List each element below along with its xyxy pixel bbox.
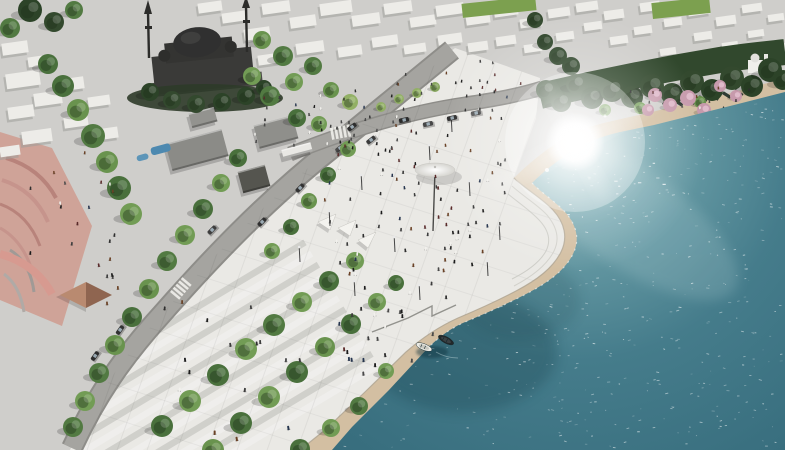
wave-speckle: [710, 253, 711, 254]
tree-highlight: [267, 390, 276, 399]
person-body: [447, 213, 449, 217]
wave-speckle: [703, 383, 705, 384]
wave-speckle: [557, 341, 558, 342]
tree-highlight: [301, 295, 309, 303]
wave-speckle: [402, 438, 405, 439]
wave-speckle: [768, 361, 769, 362]
wave-speckle: [772, 426, 773, 427]
wave-speckle: [594, 401, 597, 402]
wave-speckle: [749, 375, 751, 376]
person-body: [427, 233, 429, 237]
person-body: [414, 165, 416, 168]
wave-speckle: [516, 352, 518, 353]
person-body: [360, 307, 362, 311]
person-body: [445, 223, 447, 227]
person-body: [259, 340, 261, 344]
person-body: [309, 131, 311, 134]
wave-speckle: [626, 284, 628, 285]
wave-speckle: [716, 117, 719, 118]
tree-highlight: [271, 246, 278, 253]
tree-highlight: [84, 394, 92, 402]
wave-speckle: [765, 109, 768, 110]
pink-tree-highlight: [735, 92, 740, 97]
tree-highlight: [53, 15, 61, 23]
tree-highlight: [269, 89, 277, 97]
person-body: [348, 357, 350, 361]
tree-highlight: [330, 422, 338, 430]
wave-speckle: [737, 395, 739, 396]
person-body: [329, 181, 331, 185]
person-body: [356, 224, 358, 228]
lamp-head: [486, 260, 489, 263]
person-body: [735, 99, 736, 102]
tree-highlight: [376, 296, 384, 304]
person-body: [418, 181, 420, 184]
wave-speckle: [753, 359, 755, 360]
wave-speckle: [577, 413, 578, 414]
wave-speckle: [664, 418, 665, 419]
wave-speckle: [590, 412, 592, 413]
person-body: [374, 363, 376, 367]
wave-speckle: [620, 283, 622, 284]
tree-highlight: [98, 366, 106, 374]
person-body: [431, 282, 433, 286]
wave-speckle: [736, 318, 737, 319]
wave-speckle: [741, 185, 743, 186]
person-body: [382, 168, 384, 171]
wave-speckle: [723, 249, 725, 250]
person-body: [455, 250, 457, 254]
minaret-balcony: [145, 26, 152, 29]
pink-tree-highlight: [719, 82, 724, 87]
tree-highlight: [350, 317, 358, 325]
tree-highlight: [261, 34, 269, 42]
person-body: [401, 309, 403, 313]
lamp-head: [418, 284, 421, 287]
wave-speckle: [727, 180, 728, 181]
tree-highlight: [768, 62, 778, 72]
person-body: [346, 242, 348, 246]
wave-speckle: [568, 355, 570, 356]
wave-speckle: [563, 294, 564, 295]
tree-highlight: [244, 342, 253, 351]
person-body: [339, 261, 341, 265]
tree-highlight: [171, 94, 179, 102]
person-body: [381, 211, 383, 215]
tree-highlight: [149, 86, 157, 94]
wave-speckle: [629, 330, 631, 331]
tree-highlight: [349, 97, 356, 104]
tree-highlight: [91, 128, 101, 138]
lamp-head: [328, 210, 331, 213]
tree-highlight: [328, 274, 336, 282]
tree-highlight: [416, 90, 420, 94]
person-body: [266, 106, 267, 109]
tree-highlight: [385, 366, 392, 373]
wave-speckle: [743, 156, 744, 157]
wave-speckle: [602, 332, 603, 333]
person-body: [391, 146, 393, 149]
wave-speckle: [490, 324, 491, 325]
wave-speckle: [780, 169, 782, 170]
wave-speckle: [473, 348, 476, 349]
tree-highlight: [166, 254, 174, 262]
person-body: [391, 174, 393, 177]
person-body: [455, 81, 456, 84]
person-body: [409, 291, 411, 295]
tree-highlight: [73, 4, 81, 12]
person-body: [412, 263, 414, 267]
person-body: [446, 71, 447, 74]
wave-speckle: [740, 166, 741, 167]
canopy-knob: [434, 166, 436, 168]
wave-speckle: [710, 371, 711, 372]
wave-speckle: [446, 347, 447, 348]
wave-speckle: [685, 443, 687, 444]
person-body: [184, 358, 186, 362]
tree-highlight: [312, 60, 320, 68]
person-body: [399, 310, 401, 314]
wave-speckle: [559, 382, 560, 383]
wave-speckle: [678, 348, 680, 349]
person-body: [438, 267, 440, 271]
wave-speckle: [603, 324, 606, 325]
person-body: [117, 286, 119, 290]
wave-speckle: [719, 237, 721, 238]
person-body: [364, 286, 366, 290]
tree-highlight: [327, 170, 334, 177]
wave-speckle: [774, 311, 776, 312]
wave-speckle: [744, 140, 745, 141]
wave-speckle: [716, 406, 718, 407]
wave-speckle: [754, 366, 755, 367]
wave-speckle: [548, 311, 549, 312]
tree-highlight: [395, 278, 402, 285]
person-body: [30, 186, 32, 190]
lamp-head: [393, 236, 396, 239]
tree-highlight: [282, 49, 290, 57]
tree-highlight: [28, 2, 38, 12]
wave-speckle: [534, 382, 535, 383]
tree-highlight: [358, 400, 366, 408]
tree-highlight: [296, 112, 304, 120]
wave-speckle: [716, 230, 717, 231]
person-body: [436, 150, 438, 153]
person-body: [444, 247, 446, 251]
tree-highlight: [131, 310, 139, 318]
person-body: [457, 230, 459, 234]
person-body: [188, 370, 190, 374]
wave-speckle: [493, 443, 494, 444]
person-body: [469, 235, 471, 239]
wave-speckle: [729, 321, 731, 322]
wave-speckle: [779, 305, 782, 306]
wave-speckle: [761, 112, 763, 113]
tree-highlight: [61, 79, 70, 88]
person-body: [264, 118, 265, 121]
wave-speckle: [410, 384, 413, 385]
person-body: [362, 234, 364, 238]
wave-speckle: [708, 241, 710, 242]
person-body: [444, 258, 446, 262]
wave-speckle: [753, 417, 754, 418]
tree-highlight: [750, 79, 759, 88]
wave-speckle: [467, 427, 469, 428]
tree-highlight: [47, 57, 55, 65]
person-body: [397, 83, 398, 86]
tree-highlight: [380, 104, 384, 108]
wave-speckle: [381, 421, 383, 422]
wave-speckle: [661, 253, 663, 254]
wave-speckle: [496, 338, 499, 339]
person-body: [356, 252, 358, 256]
flare-sparkle: [545, 168, 549, 172]
minaret: [148, 12, 149, 58]
tree-highlight: [202, 202, 210, 210]
tree-highlight: [295, 365, 304, 374]
chapel-dome: [751, 54, 760, 63]
person-body: [59, 201, 61, 205]
wave-speckle: [761, 230, 764, 231]
wave-speckle: [605, 410, 606, 411]
wave-speckle: [585, 444, 587, 445]
person-body: [362, 371, 364, 375]
person-body: [415, 162, 417, 165]
tree-highlight: [76, 103, 85, 112]
person-body: [402, 171, 404, 174]
person-body: [214, 431, 216, 435]
tree-highlight: [699, 98, 704, 103]
wave-speckle: [711, 154, 712, 155]
person-body: [351, 313, 353, 317]
tree-highlight: [245, 90, 253, 98]
person-body: [77, 222, 79, 226]
person-body: [396, 177, 398, 180]
wave-speckle: [642, 317, 644, 318]
wave-speckle: [717, 222, 719, 223]
person-body: [346, 350, 348, 354]
tree-highlight: [308, 196, 315, 203]
person-body: [348, 121, 349, 124]
tree-highlight: [398, 96, 402, 100]
person-body: [403, 108, 404, 111]
person-body: [279, 96, 281, 99]
scene-canvas: [0, 0, 785, 450]
person-body: [421, 92, 422, 95]
lamp-head: [360, 174, 363, 177]
tree-highlight: [330, 85, 337, 92]
wave-speckle: [561, 399, 563, 400]
wave-speckle: [765, 118, 766, 119]
person-body: [106, 274, 108, 278]
tree-highlight: [239, 416, 248, 425]
wave-speckle: [676, 253, 677, 254]
person-body: [350, 137, 352, 140]
tree-highlight: [184, 228, 192, 236]
person-body: [410, 227, 412, 231]
wave-speckle: [468, 397, 469, 398]
tree-highlight: [216, 368, 225, 377]
wave-speckle: [606, 350, 607, 351]
wave-speckle: [757, 187, 759, 188]
wave-speckle: [695, 225, 698, 226]
person-body: [343, 347, 345, 351]
tree-highlight: [114, 338, 122, 346]
wave-speckle: [653, 285, 654, 286]
person-body: [362, 358, 364, 362]
tree-highlight: [195, 98, 203, 106]
wave-speckle: [767, 158, 768, 159]
wave-speckle: [569, 296, 570, 297]
flare-sparkle: [604, 115, 607, 118]
wave-speckle: [765, 446, 768, 447]
tree-highlight: [220, 177, 228, 185]
wave-speckle: [554, 334, 556, 335]
tree-highlight: [72, 420, 80, 428]
wave-speckle: [637, 431, 640, 432]
wave-speckle: [661, 337, 663, 338]
person-body: [181, 300, 183, 304]
wave-speckle: [677, 339, 680, 340]
wave-speckle: [770, 172, 773, 173]
tree-highlight: [117, 180, 127, 190]
wave-speckle: [556, 284, 557, 285]
wave-speckle: [587, 315, 589, 316]
person-body: [164, 306, 166, 310]
wave-speckle: [670, 311, 673, 312]
wave-speckle: [585, 389, 586, 390]
tree-highlight: [290, 222, 297, 229]
person-body: [450, 242, 452, 246]
wave-speckle: [485, 385, 488, 386]
person-body: [378, 152, 380, 155]
wave-speckle: [652, 281, 654, 282]
person-body: [411, 359, 413, 363]
lamp-head: [353, 280, 356, 283]
architectural-render: Aerial architectural rendering of a seas…: [0, 0, 785, 450]
tree-highlight: [129, 207, 138, 216]
pink-tree-highlight: [703, 105, 709, 111]
wave-speckle: [745, 264, 746, 265]
wave-speckle: [582, 308, 585, 309]
person-body: [437, 186, 439, 189]
wave-speckle: [523, 361, 526, 362]
tree-highlight: [188, 394, 197, 403]
person-body: [337, 153, 339, 156]
tree-highlight: [730, 70, 740, 80]
lens-flare: [445, 12, 705, 272]
tree-highlight: [324, 340, 332, 348]
lamp-head: [428, 144, 431, 147]
tree-highlight: [251, 70, 259, 78]
person-body: [285, 358, 287, 362]
wave-speckle: [516, 304, 517, 305]
wave-speckle: [772, 110, 773, 111]
wave-speckle: [744, 278, 746, 279]
person-body: [112, 190, 114, 194]
person-body: [109, 182, 111, 185]
tree: [0, 18, 20, 38]
person-body: [709, 100, 711, 103]
wave-speckle: [731, 129, 732, 130]
person-body: [381, 173, 383, 176]
wave-speckle: [519, 364, 521, 365]
person-body: [106, 301, 108, 305]
wave-speckle: [526, 384, 527, 385]
tree-highlight: [272, 318, 281, 327]
person-body: [295, 103, 297, 106]
tree-highlight: [221, 96, 229, 104]
person-body: [363, 106, 365, 109]
minaret: [246, 6, 247, 52]
person-body: [385, 148, 387, 151]
wave-speckle: [516, 380, 517, 381]
person-body: [401, 314, 403, 318]
tree-highlight: [690, 74, 700, 84]
wave-speckle: [546, 364, 547, 365]
tree-highlight: [293, 76, 301, 84]
tree-highlight: [148, 282, 156, 290]
person-body: [321, 128, 323, 131]
tree-highlight: [160, 419, 169, 428]
person-body: [254, 133, 255, 136]
person-body: [482, 250, 484, 254]
person-body: [349, 197, 351, 201]
minaret-balcony: [243, 20, 250, 23]
wave-speckle: [771, 394, 773, 395]
wave-speckle: [746, 301, 748, 302]
person-body: [445, 295, 447, 299]
wave-speckle: [530, 396, 531, 397]
tree-highlight: [434, 84, 438, 88]
person-body: [320, 121, 321, 124]
wave-speckle: [688, 431, 689, 432]
wave-speckle: [769, 336, 771, 337]
person-body: [411, 129, 412, 132]
wave-speckle: [538, 316, 540, 317]
tree-highlight: [237, 152, 245, 160]
wave-speckle: [496, 419, 497, 420]
lamp-head: [298, 246, 301, 249]
person-body: [438, 215, 440, 219]
person-body: [344, 144, 346, 147]
tree-highlight: [9, 21, 17, 29]
person-body: [415, 131, 417, 134]
tree-highlight: [105, 155, 114, 164]
